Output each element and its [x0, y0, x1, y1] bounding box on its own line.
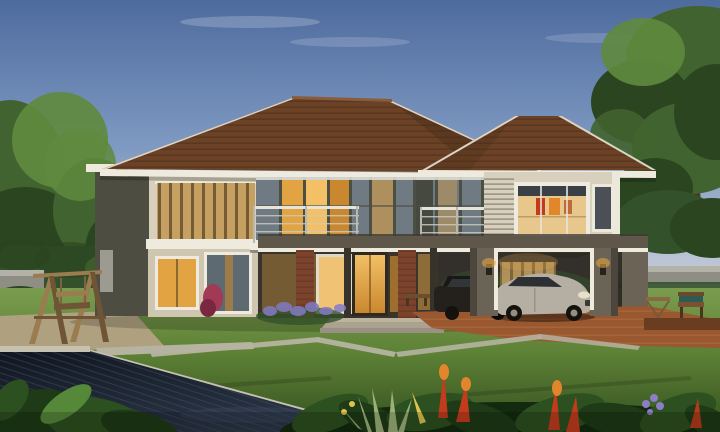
floor-band	[258, 234, 648, 253]
garden-bench-back	[678, 292, 704, 296]
entry-step	[330, 318, 430, 322]
bench-cushion	[679, 296, 703, 302]
left-side-wall	[95, 166, 149, 316]
headlight	[578, 292, 590, 299]
pool-edge	[0, 346, 90, 352]
entry-step	[320, 328, 444, 333]
rendering-svg	[0, 0, 720, 432]
slat-texture	[157, 183, 255, 239]
garden-bench-seat	[678, 302, 704, 307]
artwork-orange	[549, 198, 560, 215]
bottom-vignette	[0, 412, 720, 432]
magenta-plant-dark	[200, 299, 216, 317]
entry-sidelight	[390, 256, 398, 312]
right-small-window	[595, 187, 611, 229]
garden-table	[646, 297, 670, 301]
left-floor-band	[146, 239, 260, 249]
portico-post	[344, 248, 351, 316]
door-glow	[225, 255, 233, 311]
boundary-wall-left	[0, 270, 44, 288]
entry-step	[325, 323, 437, 327]
window-mullion	[176, 259, 178, 307]
bay-window	[514, 182, 590, 238]
entry-bench	[404, 294, 430, 298]
house-rendering-image	[0, 0, 720, 432]
wood-deck	[644, 318, 720, 330]
